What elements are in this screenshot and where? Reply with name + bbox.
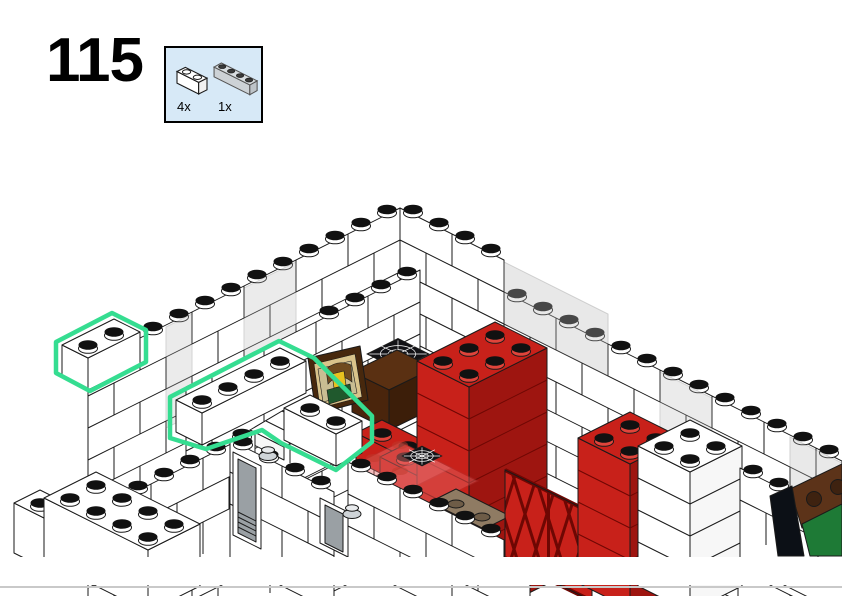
step-number: 115 <box>46 30 143 92</box>
instruction-page: 115 4x 1x <box>0 0 842 596</box>
parts-callout-box: 4x 1x <box>164 46 263 123</box>
page-divider <box>0 586 842 588</box>
brick-1x2-icon <box>172 58 212 100</box>
part-quantity-1x4: 1x <box>218 99 232 114</box>
part-quantity-1x2: 4x <box>177 99 191 114</box>
bottom-crop <box>0 557 842 585</box>
brick-1x4-icon <box>210 54 262 98</box>
